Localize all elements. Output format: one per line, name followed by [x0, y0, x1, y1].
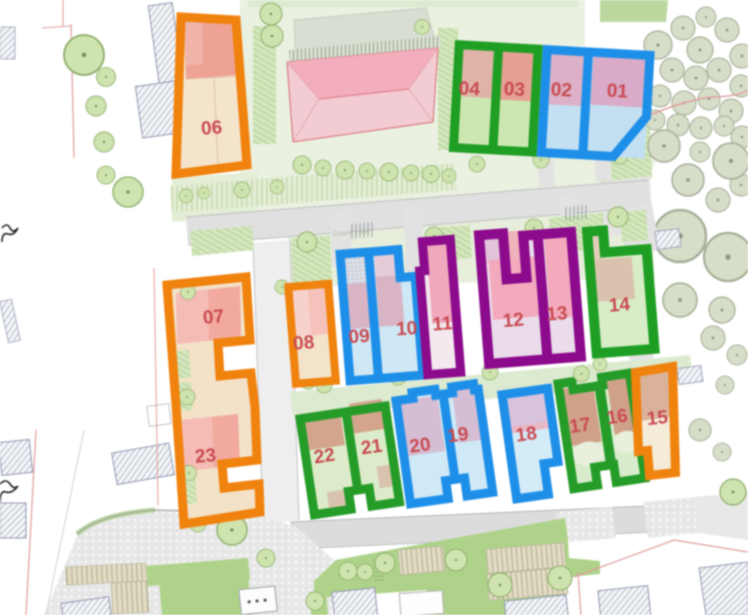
svg-text:10: 10: [395, 318, 418, 341]
svg-text:17: 17: [568, 414, 592, 438]
svg-text:23: 23: [194, 445, 217, 468]
svg-text:15: 15: [646, 407, 670, 430]
svg-text:16: 16: [605, 405, 629, 429]
svg-text:13: 13: [546, 303, 569, 326]
svg-text:07: 07: [202, 306, 225, 329]
svg-text:18: 18: [514, 423, 538, 447]
svg-text:08: 08: [292, 332, 315, 355]
svg-text:09: 09: [348, 326, 371, 349]
svg-text:06: 06: [200, 117, 223, 139]
svg-text:12: 12: [502, 310, 525, 333]
svg-text:03: 03: [503, 79, 525, 101]
svg-text:14: 14: [608, 294, 631, 317]
svg-text:19: 19: [446, 424, 470, 448]
svg-text:11: 11: [432, 313, 454, 336]
svg-text:02: 02: [550, 79, 572, 101]
svg-text:01: 01: [606, 81, 629, 103]
svg-text:22: 22: [312, 445, 336, 469]
svg-text:04: 04: [458, 78, 481, 100]
svg-text:21: 21: [360, 436, 384, 460]
svg-text:20: 20: [408, 434, 432, 458]
